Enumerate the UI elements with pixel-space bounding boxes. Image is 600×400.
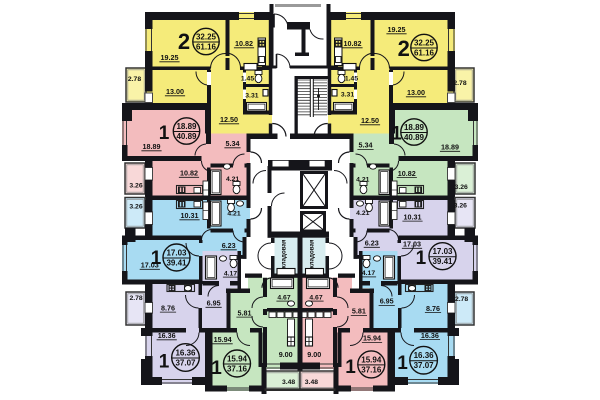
svg-text:4.21: 4.21 — [356, 176, 369, 183]
svg-text:15.94: 15.94 — [363, 334, 381, 343]
svg-text:2.78: 2.78 — [129, 295, 142, 302]
svg-text:1: 1 — [159, 123, 170, 144]
svg-text:2.78: 2.78 — [455, 296, 468, 303]
svg-text:37.16: 37.16 — [227, 365, 248, 374]
svg-text:32.25: 32.25 — [414, 39, 435, 48]
svg-text:2: 2 — [178, 29, 190, 54]
svg-text:10.82: 10.82 — [180, 169, 198, 178]
svg-text:5.34: 5.34 — [226, 139, 240, 148]
svg-text:10.31: 10.31 — [181, 211, 199, 220]
svg-text:3.26: 3.26 — [454, 203, 467, 210]
svg-text:2.78: 2.78 — [128, 76, 141, 83]
svg-text:15.94: 15.94 — [361, 355, 382, 364]
svg-text:37.07: 37.07 — [175, 359, 196, 368]
svg-text:15.94: 15.94 — [227, 355, 248, 364]
svg-text:17.03: 17.03 — [141, 261, 159, 270]
svg-text:18.89: 18.89 — [404, 123, 425, 132]
svg-text:3.48: 3.48 — [282, 379, 295, 386]
svg-text:4.21: 4.21 — [226, 176, 239, 183]
svg-text:1.45: 1.45 — [345, 76, 358, 83]
svg-text:10.82: 10.82 — [235, 39, 253, 48]
svg-text:39.41: 39.41 — [432, 257, 453, 266]
svg-text:40.89: 40.89 — [404, 133, 425, 142]
svg-text:17.03: 17.03 — [403, 240, 421, 249]
svg-text:12.50: 12.50 — [361, 116, 379, 125]
svg-text:13.00: 13.00 — [166, 87, 184, 96]
svg-text:19.25: 19.25 — [161, 53, 179, 62]
svg-text:15.94: 15.94 — [214, 335, 232, 344]
svg-text:13.00: 13.00 — [407, 88, 425, 97]
svg-text:9.00: 9.00 — [279, 350, 293, 359]
svg-text:1.45: 1.45 — [241, 76, 254, 83]
svg-text:1: 1 — [159, 352, 170, 373]
svg-text:8.76: 8.76 — [161, 303, 175, 312]
svg-text:12.50: 12.50 — [220, 115, 238, 124]
svg-text:кладовая: кладовая — [309, 239, 316, 268]
svg-text:39.41: 39.41 — [166, 259, 187, 268]
svg-text:4.67: 4.67 — [277, 294, 290, 301]
svg-text:6.23: 6.23 — [365, 239, 379, 248]
svg-text:16.36: 16.36 — [421, 331, 439, 340]
svg-text:4.17: 4.17 — [362, 270, 375, 277]
svg-text:3.31: 3.31 — [245, 93, 258, 100]
svg-text:10.31: 10.31 — [404, 212, 422, 221]
svg-text:61.16: 61.16 — [196, 43, 217, 52]
svg-text:18.89: 18.89 — [143, 142, 161, 151]
svg-text:6.95: 6.95 — [207, 299, 221, 308]
svg-text:10.82: 10.82 — [344, 39, 362, 48]
svg-text:3.31: 3.31 — [341, 92, 354, 99]
svg-text:18.89: 18.89 — [441, 143, 459, 152]
svg-text:32.25: 32.25 — [196, 33, 217, 42]
svg-text:17.03: 17.03 — [166, 249, 187, 258]
svg-text:2: 2 — [398, 36, 410, 61]
svg-text:1: 1 — [397, 353, 408, 374]
svg-text:6.23: 6.23 — [222, 241, 236, 250]
svg-text:5.81: 5.81 — [352, 307, 366, 316]
svg-text:1: 1 — [345, 357, 356, 378]
svg-text:16.36: 16.36 — [158, 331, 176, 340]
svg-text:9.00: 9.00 — [307, 350, 321, 359]
svg-text:17.03: 17.03 — [432, 247, 453, 256]
svg-text:10.82: 10.82 — [398, 169, 416, 178]
svg-text:2.78: 2.78 — [453, 80, 466, 87]
svg-text:4.17: 4.17 — [224, 270, 237, 277]
svg-text:4.21: 4.21 — [356, 210, 369, 217]
svg-text:5.81: 5.81 — [238, 308, 252, 317]
svg-text:4.67: 4.67 — [309, 294, 322, 301]
svg-text:8.76: 8.76 — [426, 304, 440, 313]
svg-text:18.89: 18.89 — [176, 122, 197, 131]
svg-text:37.07: 37.07 — [414, 361, 435, 370]
svg-text:3.48: 3.48 — [305, 379, 318, 386]
svg-text:1: 1 — [211, 358, 222, 379]
svg-text:6.95: 6.95 — [380, 297, 394, 306]
svg-text:3.26: 3.26 — [129, 182, 142, 189]
svg-text:4.21: 4.21 — [227, 210, 240, 217]
svg-text:1: 1 — [416, 248, 427, 269]
svg-text:3.26: 3.26 — [455, 184, 468, 191]
svg-text:19.25: 19.25 — [388, 25, 406, 34]
svg-text:3.26: 3.26 — [129, 203, 142, 210]
svg-text:40.89: 40.89 — [176, 132, 197, 141]
svg-text:61.16: 61.16 — [414, 49, 435, 58]
svg-text:16.36: 16.36 — [414, 351, 435, 360]
svg-text:5.34: 5.34 — [359, 141, 373, 150]
svg-text:37.16: 37.16 — [361, 365, 382, 374]
svg-text:16.36: 16.36 — [175, 349, 196, 358]
svg-text:кладовая: кладовая — [281, 239, 288, 268]
